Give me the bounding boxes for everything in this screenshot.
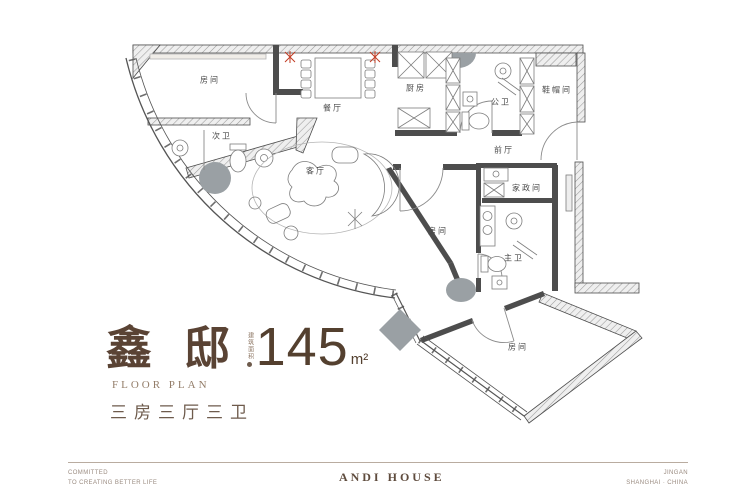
column-diamond [379,309,421,351]
room-label-bedroom-top-left: 房间 [200,75,220,86]
area-group: 建筑面积 145 m² [246,324,368,372]
master-bath-fixtures [480,206,537,289]
floor-plan-label: FLOOR PLAN [112,379,368,391]
room-label-living: 客厅 [306,166,326,177]
footer-left: COMMITTED TO CREATING BETTER LIFE [68,469,157,488]
room-label-master-bath: 主卫 [504,253,524,264]
footer-left-line2: TO CREATING BETTER LIFE [68,479,157,489]
footer-right: JINGAN SHANGHAI · CHINA [626,469,688,488]
footer-left-line1: COMMITTED [68,469,157,479]
column-ellipse [446,278,476,302]
layout-label: 三房三厅三卫 [110,398,368,423]
closet-strip [150,54,266,59]
room-label-front-hall: 前厅 [494,145,514,156]
room-label-second-bath: 次卫 [212,131,232,142]
footer-right-line1: JINGAN [626,469,688,479]
floor-plan-drawing [0,0,750,500]
room-label-bedroom-bottom: 房间 [508,342,528,353]
estate-name: 鑫邸 [106,326,262,372]
room-label-dining: 餐厅 [323,103,343,114]
footer: COMMITTED TO CREATING BETTER LIFE ANDI H… [68,462,688,488]
dining-table [301,58,375,98]
room-label-public-bath: 公卫 [491,97,511,108]
footer-right-line2: SHANGHAI · CHINA [626,479,688,489]
room-label-cloakroom: 鞋帽间 [542,85,572,96]
area-value: 145 [256,324,349,372]
housekeeping-fixtures [484,168,508,197]
area-seal-dot [247,362,252,367]
area-unit: m² [351,351,369,372]
room-label-housekeeping: 家政间 [512,183,542,194]
cloakroom-wardrobe [520,58,534,134]
page: 房间 次卫 餐厅 客厅 厨房 公卫 鞋帽间 前厅 家政间 房间 主卫 房间 鑫邸… [0,0,750,500]
title-block: 鑫邸 建筑面积 145 m² FLOOR PLAN 三房三厅三卫 [106,324,368,423]
footer-brand: ANDI HOUSE [339,470,445,485]
hall-panel [566,175,572,211]
room-label-bedroom-middle: 房间 [428,226,448,237]
room-label-kitchen: 厨房 [406,83,426,94]
area-prefix-label: 建筑面积 [246,332,253,360]
